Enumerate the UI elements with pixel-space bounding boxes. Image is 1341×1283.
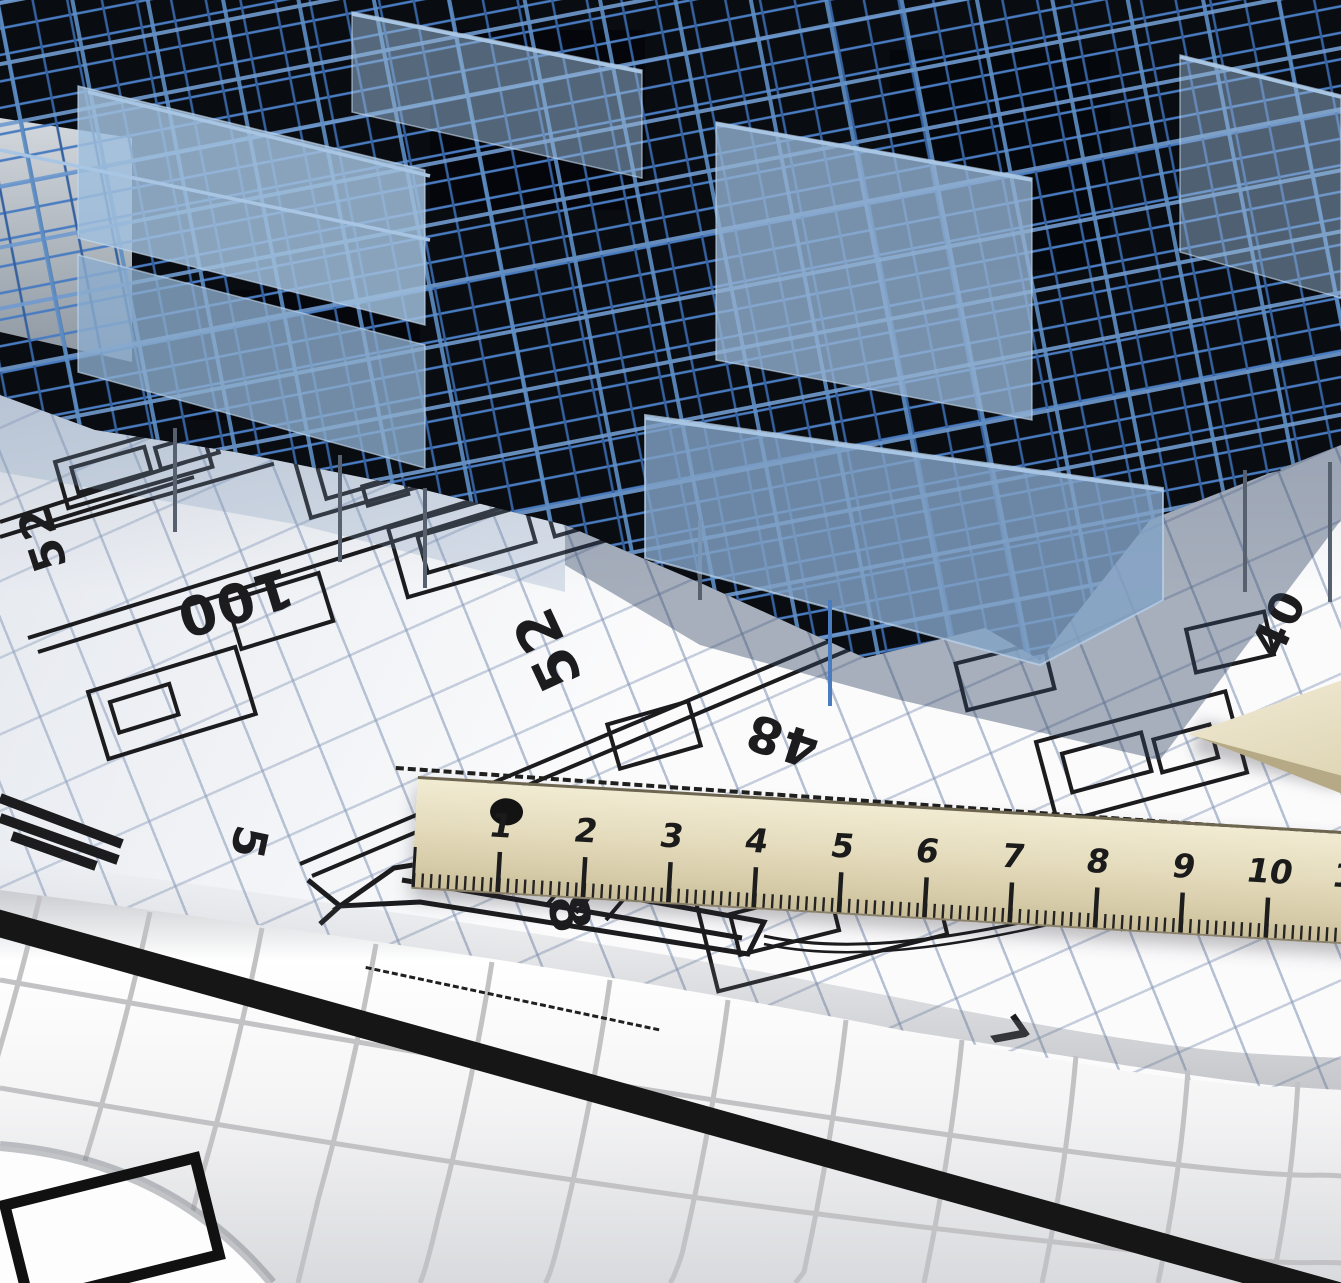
ruler-number: 3 xyxy=(646,815,698,856)
ruler-number: 2 xyxy=(560,810,612,851)
ruler-number: 9 xyxy=(1158,845,1210,886)
ruler-number: 8 xyxy=(1072,840,1124,881)
blueprint-scene: 52 100 52 48 40 40 5 48 7 52 25 xyxy=(0,0,1341,1283)
set-square[interactable] xyxy=(1188,672,1341,802)
ruler-number: 7 xyxy=(987,835,1039,876)
ruler-number: 6 xyxy=(902,830,954,871)
ruler-number: 1 xyxy=(475,805,527,846)
ruler-number: 10 xyxy=(1243,851,1295,892)
ruler-number: 4 xyxy=(731,820,783,861)
building-wireframe-model xyxy=(0,0,1341,760)
ruler-number: 5 xyxy=(817,825,869,866)
ruler-number: 11 xyxy=(1329,856,1341,897)
